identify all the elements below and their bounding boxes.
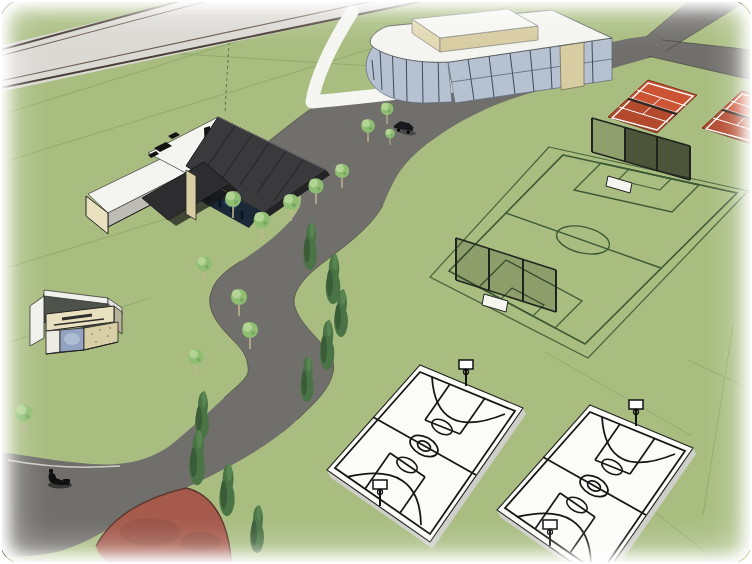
pavilion-tan-wall <box>560 42 584 90</box>
site-plan-svg: Aerial 3D rendering of a sports park mas… <box>0 0 752 564</box>
kiosk-panel-blue-glow <box>64 333 80 345</box>
kiosk-panel-white <box>46 330 60 354</box>
render-image: Aerial 3D rendering of a sports park mas… <box>0 0 752 564</box>
tan-pillar <box>186 170 196 220</box>
sports-park-render-stage: Aerial 3D rendering of a sports park mas… <box>0 0 752 564</box>
